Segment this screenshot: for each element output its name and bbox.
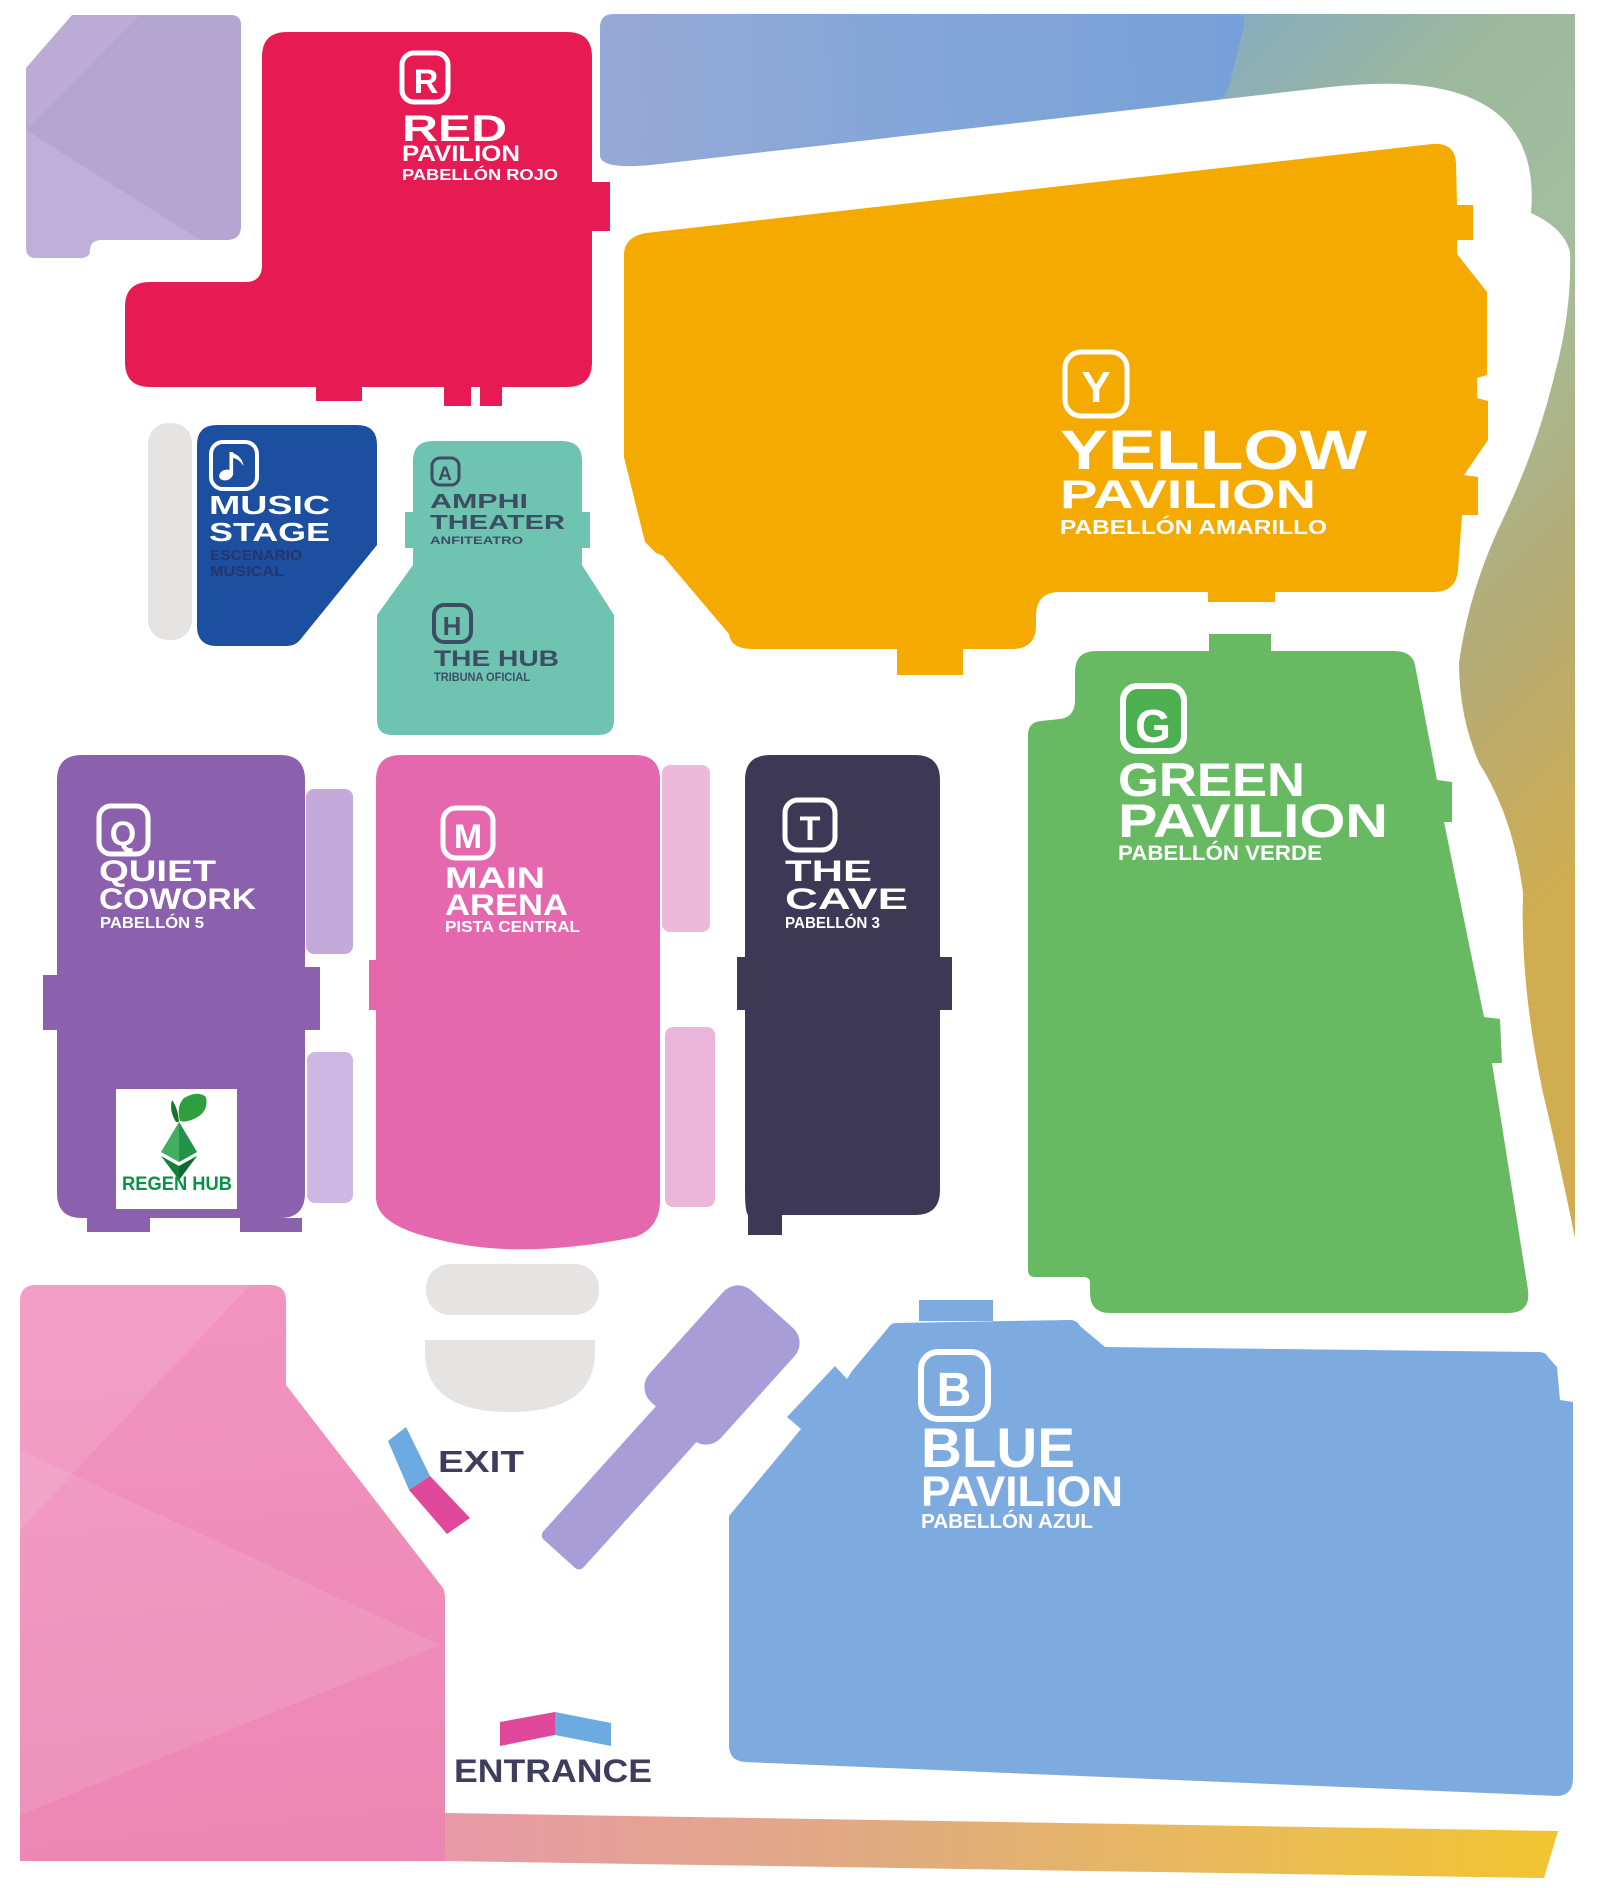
svg-text:PAVILION: PAVILION	[1060, 473, 1316, 517]
svg-text:THE HUB: THE HUB	[434, 646, 559, 671]
svg-text:AMPHI: AMPHI	[430, 491, 528, 513]
svg-text:COWORK: COWORK	[99, 883, 256, 916]
svg-text:PABELLÓN AZUL: PABELLÓN AZUL	[921, 1509, 1093, 1533]
svg-text:PABELLÓN VERDE: PABELLÓN VERDE	[1118, 841, 1322, 865]
svg-text:B: B	[937, 1364, 972, 1417]
svg-text:YELLOW: YELLOW	[1060, 418, 1367, 481]
svg-text:R: R	[414, 63, 439, 101]
svg-text:M: M	[454, 818, 482, 856]
svg-text:PABELLÓN 5: PABELLÓN 5	[100, 913, 204, 932]
svg-text:T: T	[800, 810, 821, 848]
svg-text:PABELLÓN 3: PABELLÓN 3	[785, 913, 880, 932]
svg-text:MUSIC: MUSIC	[209, 490, 330, 520]
svg-text:PABELLÓN ROJO: PABELLÓN ROJO	[402, 165, 558, 184]
svg-text:REGEN HUB: REGEN HUB	[122, 1174, 232, 1195]
svg-text:MUSICAL: MUSICAL	[210, 563, 284, 580]
svg-text:TRIBUNA OFICIAL: TRIBUNA OFICIAL	[434, 670, 530, 684]
svg-text:Y: Y	[1081, 363, 1110, 412]
svg-text:ESCENARIO: ESCENARIO	[210, 547, 302, 564]
svg-text:G: G	[1135, 700, 1171, 752]
svg-text:PAVILION: PAVILION	[921, 1468, 1123, 1516]
svg-text:Q: Q	[110, 815, 136, 853]
svg-text:STAGE: STAGE	[209, 517, 330, 547]
svg-text:PAVILION: PAVILION	[402, 141, 520, 166]
svg-text:PAVILION: PAVILION	[1118, 794, 1388, 847]
svg-text:PABELLÓN AMARILLO: PABELLÓN AMARILLO	[1060, 515, 1327, 539]
svg-text:EXIT: EXIT	[438, 1444, 524, 1479]
svg-text:ANFITEATRO: ANFITEATRO	[430, 535, 524, 547]
svg-text:PISTA CENTRAL: PISTA CENTRAL	[445, 919, 580, 936]
svg-text:CAVE: CAVE	[785, 883, 908, 916]
svg-text:ENTRANCE: ENTRANCE	[454, 1753, 652, 1789]
svg-text:A: A	[438, 464, 452, 485]
svg-text:THEATER: THEATER	[430, 512, 566, 534]
svg-text:H: H	[443, 611, 462, 641]
svg-text:ARENA: ARENA	[445, 889, 568, 922]
